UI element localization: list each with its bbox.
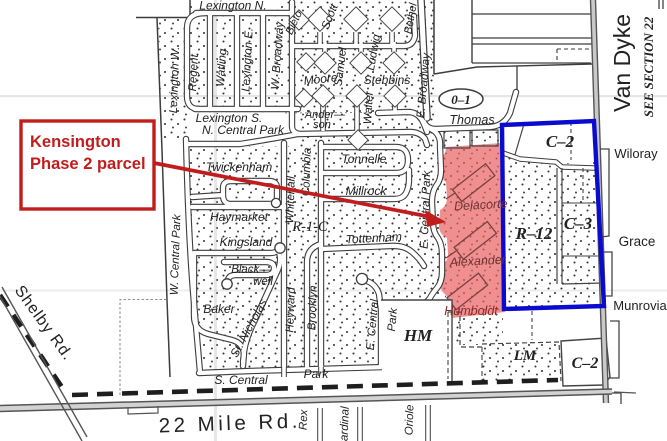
svg-text:son: son: [313, 119, 331, 131]
svg-text:Lexington W.: Lexington W.: [168, 46, 182, 113]
svg-text:S. Central: S. Central: [214, 373, 268, 387]
svg-text:Park: Park: [386, 306, 400, 332]
svg-text:Haymarket: Haymarket: [210, 210, 269, 224]
svg-text:Black—: Black—: [231, 264, 271, 276]
svg-text:HM: HM: [403, 326, 433, 345]
svg-text:Baker: Baker: [203, 302, 235, 316]
svg-text:Munrovia: Munrovia: [613, 298, 667, 313]
svg-text:R–12: R–12: [515, 224, 553, 243]
svg-text:well: well: [253, 276, 273, 288]
svg-text:Van Dyke: Van Dyke: [609, 14, 635, 112]
svg-text:LM: LM: [513, 348, 537, 364]
svg-text:Thomas: Thomas: [449, 113, 494, 127]
svg-text:Park: Park: [304, 367, 330, 381]
svg-text:Twickenham: Twickenham: [206, 160, 272, 174]
svg-text:0–1: 0–1: [451, 92, 471, 107]
svg-text:Kensington: Kensington: [30, 133, 121, 151]
svg-text:Stebbins: Stebbins: [364, 73, 411, 87]
svg-text:C–3: C–3: [564, 214, 593, 233]
svg-text:Tonnelle: Tonnelle: [342, 152, 387, 166]
svg-text:C–2: C–2: [572, 355, 599, 372]
svg-text:C–2: C–2: [546, 132, 575, 151]
svg-text:Kingsland: Kingsland: [220, 235, 273, 249]
svg-text:Wiloray: Wiloray: [614, 146, 658, 161]
svg-text:Whitehall: Whitehall: [284, 176, 298, 224]
svg-text:Heyward: Heyward: [284, 286, 298, 332]
svg-text:Grace: Grace: [619, 234, 656, 249]
svg-text:Phase 2 parcel: Phase 2 parcel: [30, 155, 146, 173]
svg-text:Regent: Regent: [187, 53, 201, 91]
svg-text:Tottenham: Tottenham: [345, 230, 402, 247]
svg-text:Cardinal: Cardinal: [338, 406, 352, 441]
svg-text:Oriole: Oriole: [403, 404, 416, 435]
svg-text:Humboldt: Humboldt: [444, 304, 498, 318]
svg-text:SEE SECTION 22: SEE SECTION 22: [641, 16, 656, 117]
svg-text:Columbia: Columbia: [300, 147, 314, 196]
svg-text:Rex: Rex: [298, 408, 311, 430]
svg-text:Walter: Walter: [362, 90, 376, 125]
svg-text:Delacorte: Delacorte: [454, 197, 508, 214]
svg-text:R‑1‑C: R‑1‑C: [291, 219, 328, 235]
svg-text:N. Central Park: N. Central Park: [202, 123, 285, 137]
svg-text:Lexington N.: Lexington N.: [199, 0, 266, 13]
svg-text:Brooklyn: Brooklyn: [306, 285, 320, 330]
svg-text:Millrock: Millrock: [346, 184, 388, 198]
